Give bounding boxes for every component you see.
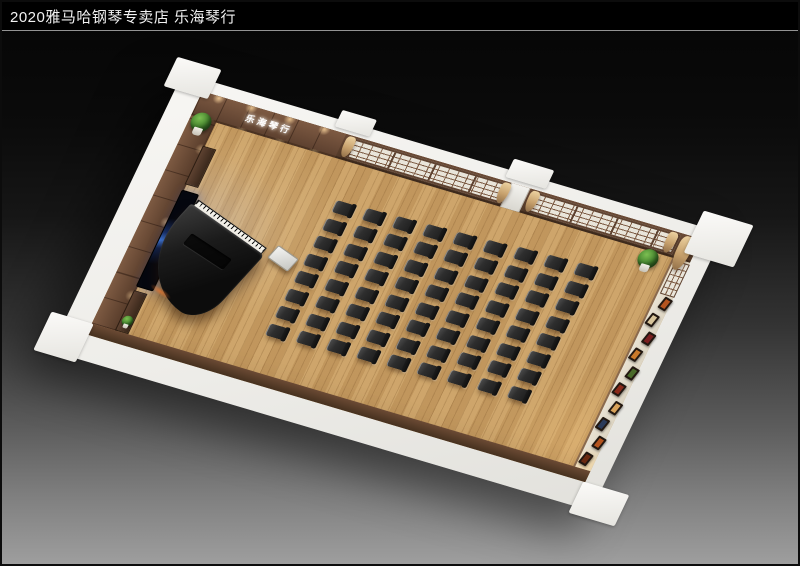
audience-chair xyxy=(442,249,464,266)
audience-chair xyxy=(414,301,436,318)
audience-chair xyxy=(543,255,565,272)
audience-chair xyxy=(333,260,355,277)
audience-chair xyxy=(512,247,534,264)
audience-chair xyxy=(412,241,434,258)
audience-chair xyxy=(475,317,497,334)
plant-pot xyxy=(122,323,129,328)
audience-chair xyxy=(465,334,487,351)
audience-chair xyxy=(314,295,336,312)
audience-chair xyxy=(382,233,404,250)
audience-chair xyxy=(344,303,366,320)
corner-cap-top xyxy=(164,57,222,99)
audience-chair xyxy=(393,276,415,293)
audience-chair xyxy=(384,293,406,310)
audience-chair xyxy=(444,309,466,326)
corner-cap-bottom xyxy=(568,482,629,527)
audience-chair xyxy=(573,262,595,279)
audience-chair xyxy=(493,282,515,299)
audience-chair xyxy=(433,266,455,283)
audience-chair xyxy=(435,327,457,344)
audience-chair xyxy=(463,274,485,291)
title-text: 2020雅马哈钢琴专卖店 乐海琴行 xyxy=(2,6,236,27)
audience-chair xyxy=(554,297,576,314)
audience-chair xyxy=(416,362,438,379)
audience-chair xyxy=(514,307,536,324)
audience-chair xyxy=(503,264,525,281)
store-building: 乐海琴行 xyxy=(50,73,723,511)
audience-chair xyxy=(303,253,325,270)
audience-chair xyxy=(525,350,547,367)
audience-chair xyxy=(495,342,517,359)
audience-chair xyxy=(452,231,474,248)
audience-chair xyxy=(342,243,364,260)
audience-chair xyxy=(274,305,296,322)
audience-chair xyxy=(392,216,414,233)
audience-chair xyxy=(403,258,425,275)
audience-chair xyxy=(424,284,446,301)
audience-chair xyxy=(335,321,357,338)
audience-chair xyxy=(456,352,478,369)
audience-chair xyxy=(354,286,376,303)
audience-chair xyxy=(265,323,287,340)
audience-chair xyxy=(284,288,306,305)
audience-chair xyxy=(365,329,387,346)
audience-chair xyxy=(484,299,506,316)
audience-chair xyxy=(486,360,508,377)
audience-chair xyxy=(325,338,347,355)
audience-chair xyxy=(473,256,495,273)
audience-chair xyxy=(386,354,408,371)
audience-chair xyxy=(361,208,383,225)
audience-chair xyxy=(356,346,378,363)
audience-chair xyxy=(331,200,353,217)
audience-chair xyxy=(446,369,468,386)
audience-chair xyxy=(373,251,395,268)
corner-cap-right xyxy=(684,211,754,268)
audience-chair xyxy=(295,330,317,347)
audience-chair xyxy=(482,239,504,256)
audience-chair xyxy=(476,377,498,394)
audience-chair xyxy=(312,235,334,252)
audience-chair xyxy=(505,325,527,342)
audience-chair xyxy=(352,225,374,242)
audience-chair xyxy=(363,268,385,285)
audience-chair xyxy=(322,217,344,234)
interior-floor: 乐海琴行 xyxy=(87,91,702,482)
audience-chair xyxy=(422,223,444,240)
title-bar: 2020雅马哈钢琴专卖店 乐海琴行 xyxy=(2,2,798,31)
corner-cap-left xyxy=(33,312,93,363)
audience-chair xyxy=(563,280,585,297)
audience-chair xyxy=(425,344,447,361)
audience-chair xyxy=(507,385,529,402)
audience-chair xyxy=(454,292,476,309)
audience-chair xyxy=(324,278,346,295)
audience-chair xyxy=(395,336,417,353)
piano-tail-light xyxy=(148,282,173,302)
audience-chair xyxy=(544,315,566,332)
audience-chair xyxy=(535,332,557,349)
audience-chair xyxy=(405,319,427,336)
audience-chair xyxy=(524,290,546,307)
audience-chair xyxy=(305,313,327,330)
piano-lid-slot xyxy=(183,233,232,270)
audience-chair xyxy=(533,272,555,289)
audience-chair xyxy=(374,311,396,328)
render-canvas: 2020雅马哈钢琴专卖店 乐海琴行 乐海琴行 xyxy=(0,0,800,566)
audience-chair xyxy=(516,368,538,385)
